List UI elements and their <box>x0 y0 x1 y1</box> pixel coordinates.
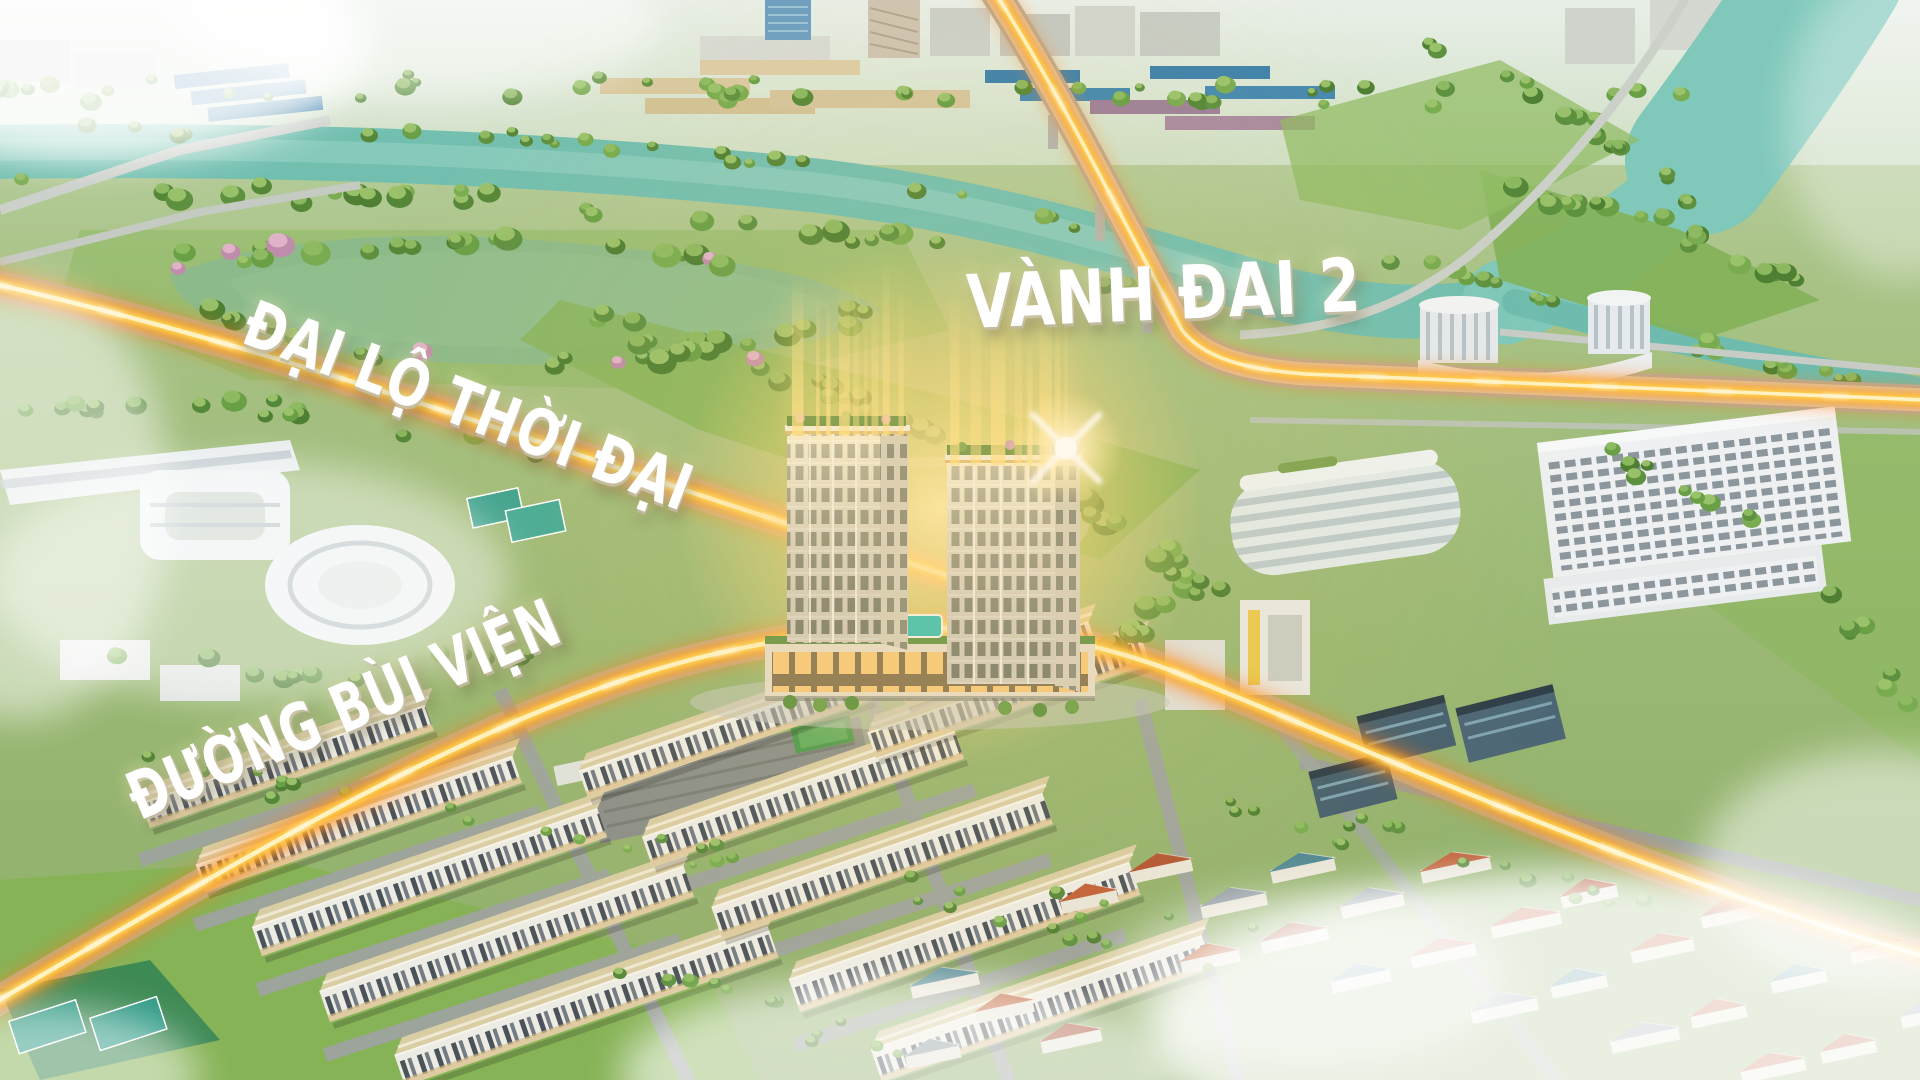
tree-crown <box>360 187 376 199</box>
aerial-render: VÀNH ĐAI 2 ĐẠI LỘ THỜI ĐẠI ĐƯỜNG BÙI VIỆ… <box>0 0 1920 1080</box>
tree-crown <box>1691 491 1701 499</box>
tree-crown <box>1756 263 1772 275</box>
tree-crown <box>1730 255 1745 267</box>
tree-crown <box>266 791 276 799</box>
tree-crown <box>1660 167 1671 175</box>
tree-crown <box>1700 332 1714 343</box>
tree-crown <box>1557 107 1572 118</box>
tree-crown <box>155 183 169 194</box>
scene-canvas <box>0 0 1920 1080</box>
tree-crown <box>1622 456 1635 466</box>
tree-crown <box>1884 667 1896 676</box>
tree-crown <box>238 255 248 263</box>
tree-crown <box>1429 43 1441 52</box>
tree-crown <box>1845 372 1857 381</box>
tree-crown <box>222 313 231 320</box>
tree-crown <box>1635 211 1645 218</box>
tree-crown <box>1674 87 1685 95</box>
tree-crown <box>223 390 240 403</box>
tree-crown <box>1521 76 1531 84</box>
tree-crown <box>267 394 278 402</box>
tree-crown <box>1689 229 1702 239</box>
tree-crown <box>1437 81 1450 91</box>
tree-crown <box>253 177 267 187</box>
tree-crown <box>1822 585 1836 596</box>
tree-crown <box>253 249 268 260</box>
tree-crown <box>283 408 294 416</box>
tree-crown <box>254 240 267 250</box>
tree-crown <box>1540 195 1556 207</box>
tree-crown <box>1627 468 1640 478</box>
tree-crown <box>1841 620 1855 631</box>
tree-crown <box>404 123 417 133</box>
tree-crown <box>201 298 218 311</box>
tree-crown <box>1834 374 1842 380</box>
tree-crown <box>168 188 186 202</box>
tree-crown <box>259 410 269 418</box>
tree-crown <box>1878 679 1892 690</box>
tree-crown <box>1642 460 1651 466</box>
tree-crown <box>1591 197 1602 205</box>
tree-crown <box>1679 485 1688 492</box>
tree-crown <box>1899 695 1912 705</box>
tree-crown <box>1501 70 1511 77</box>
tree-crown <box>362 128 374 137</box>
tree-crown <box>268 233 287 247</box>
tree-crown <box>1655 208 1669 219</box>
label-ring-road-2: VÀNH ĐAI 2 <box>965 249 1362 340</box>
tree-crown <box>1776 263 1791 274</box>
tree-crown <box>222 185 239 198</box>
tree-crown <box>194 398 206 407</box>
fog-patch <box>1110 890 1510 1070</box>
tree-crown <box>303 241 323 256</box>
tree-crown <box>287 777 298 785</box>
tree-crown <box>172 262 182 270</box>
tree-crown <box>223 244 236 254</box>
tree-crown <box>1743 509 1753 516</box>
tree-crown <box>175 243 190 254</box>
tree-crown <box>1606 442 1617 450</box>
tree-crown <box>1614 143 1622 149</box>
tree-crown <box>15 173 25 180</box>
tree-crown <box>1683 197 1693 205</box>
